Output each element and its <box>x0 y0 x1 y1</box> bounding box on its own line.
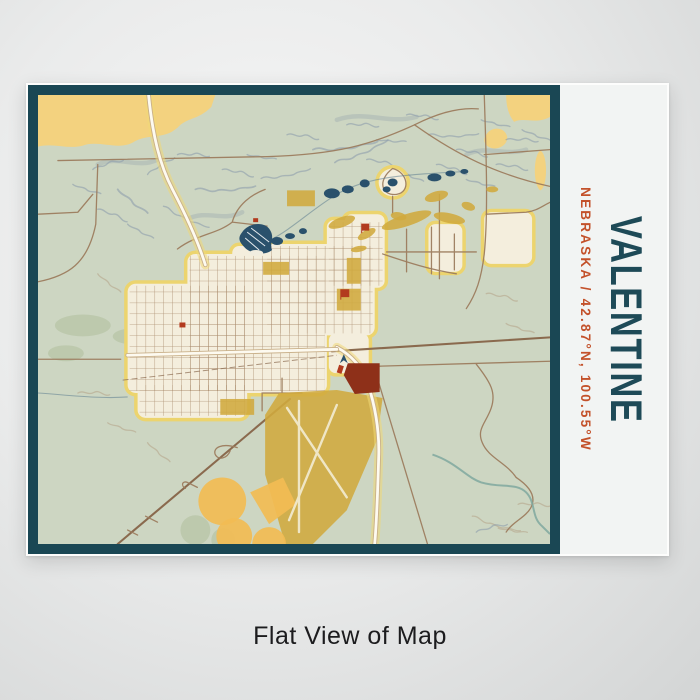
map-illustration <box>38 95 550 544</box>
view-caption: Flat View of Map <box>0 606 700 666</box>
map-frame <box>28 85 560 554</box>
print-subtitle: NEBRASKA / 42.87°N, 100.55°W <box>578 187 593 452</box>
page-background: { "print": { "title": "VALENTINE", "subt… <box>0 0 700 700</box>
map-print: VALENTINE NEBRASKA / 42.87°N, 100.55°W <box>26 83 669 556</box>
print-title: VALENTINE <box>600 216 651 424</box>
print-side-panel: VALENTINE NEBRASKA / 42.87°N, 100.55°W <box>560 85 667 554</box>
